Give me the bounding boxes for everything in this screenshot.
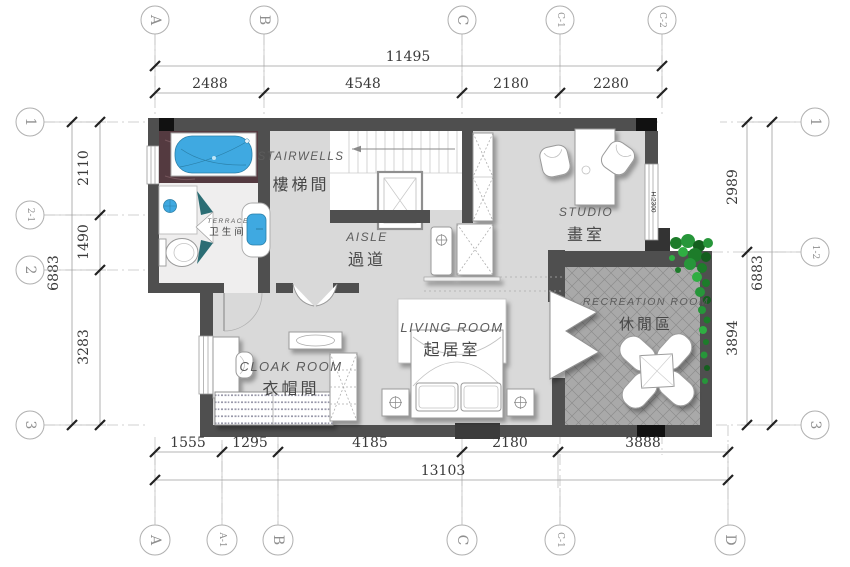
window-height-note: H:2300 bbox=[650, 192, 657, 213]
grid-bubble-right-12: 1-2 bbox=[810, 245, 820, 260]
grid-bubble-bottom-c1: C-1 bbox=[555, 532, 565, 548]
aisle-bench bbox=[431, 227, 452, 275]
grid-bubble-top-a: A bbox=[147, 14, 163, 26]
dim-top-1: 2488 bbox=[192, 76, 228, 92]
dim-right-2: 3894 bbox=[725, 320, 741, 356]
nightstand-right bbox=[507, 389, 534, 416]
dim-top-2: 4548 bbox=[345, 76, 381, 92]
grid-bubble-bottom-c: C bbox=[454, 535, 470, 546]
dim-left-total: 6883 bbox=[46, 255, 62, 291]
floor-plan-canvas: H:2300 bbox=[0, 0, 850, 567]
grid-bubble-left-3: 3 bbox=[22, 421, 38, 430]
nightstand-left bbox=[382, 389, 409, 416]
room-label-living: LIVING ROOM bbox=[400, 320, 503, 335]
dim-right-total: 6883 bbox=[750, 255, 766, 291]
dim-bottom-3: 4185 bbox=[352, 435, 388, 451]
dim-bottom-2: 1295 bbox=[232, 435, 268, 451]
dim-left-3: 3283 bbox=[76, 329, 92, 365]
dim-bottom-1: 1555 bbox=[170, 435, 206, 451]
grid-bubble-bottom-a1: A-1 bbox=[217, 531, 227, 547]
grid-bubble-top-c: C bbox=[454, 15, 470, 26]
room-label-living-zh: 起居室 bbox=[423, 340, 480, 359]
tall-cabinet bbox=[473, 133, 493, 221]
low-shelf bbox=[424, 277, 500, 281]
grid-bubble-right-1: 1 bbox=[807, 118, 823, 127]
grid-bubble-bottom-a: A bbox=[147, 534, 163, 546]
room-label-studio: STUDIO bbox=[559, 205, 613, 219]
room-label-studio-zh: 畫室 bbox=[567, 225, 605, 244]
grid-bubble-top-c2: C-2 bbox=[657, 12, 667, 28]
room-label-bathroom-zh: 卫生间 bbox=[209, 226, 247, 238]
dim-bottom-4: 2180 bbox=[492, 435, 528, 451]
dim-top-3: 2180 bbox=[493, 76, 529, 92]
room-label-cloak: CLOAK ROOM bbox=[239, 359, 342, 374]
room-label-cloak-zh: 衣帽間 bbox=[262, 379, 319, 398]
room-label-stairwells: STAIRWELLS bbox=[258, 151, 345, 163]
grid-bubble-bottom-b: B bbox=[270, 535, 286, 545]
dim-bottom-5: 3888 bbox=[625, 435, 661, 451]
dim-left-2: 1490 bbox=[76, 224, 92, 260]
room-label-recreation-zh: 休閒區 bbox=[619, 315, 673, 333]
console-table bbox=[289, 332, 342, 349]
dim-bottom-total: 13103 bbox=[421, 463, 466, 479]
grid-bubble-top-c1: C-1 bbox=[555, 12, 565, 28]
window-left bbox=[147, 146, 159, 184]
dim-top-4: 2280 bbox=[593, 76, 629, 92]
dim-left-1: 2110 bbox=[76, 150, 92, 186]
room-label-recreation: RECREATION ROOM bbox=[583, 296, 709, 308]
dim-top-total: 11495 bbox=[386, 49, 431, 65]
room-label-aisle-zh: 過道 bbox=[348, 250, 386, 269]
dim-right-1: 2989 bbox=[725, 169, 741, 205]
grid-bubble-bottom-d: D bbox=[722, 534, 738, 545]
aisle-cabinet bbox=[457, 224, 493, 275]
grid-bubble-left-2: 2 bbox=[22, 266, 38, 275]
grid-bubble-left-21: 2-1 bbox=[25, 208, 35, 223]
room-label-aisle: AISLE bbox=[345, 230, 388, 244]
grid-bubble-right-3: 3 bbox=[807, 421, 823, 430]
grid-bubble-top-b: B bbox=[256, 15, 272, 25]
vanity-sink bbox=[159, 186, 197, 234]
bathtub bbox=[171, 133, 256, 176]
room-label-stairwells-zh: 樓梯間 bbox=[272, 175, 329, 194]
toilet bbox=[159, 239, 198, 267]
window-cloak bbox=[199, 336, 213, 394]
grid-bubble-left-1: 1 bbox=[22, 118, 38, 127]
room-label-bathroom: TERRACE bbox=[207, 218, 249, 225]
window-studio: H:2300 bbox=[645, 164, 658, 240]
